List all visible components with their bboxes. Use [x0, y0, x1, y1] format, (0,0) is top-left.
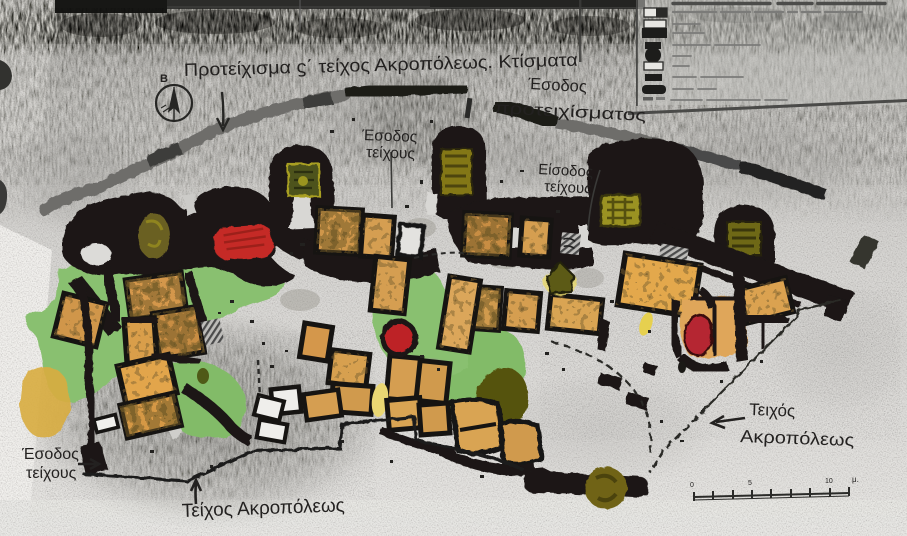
svg-text:τείχους: τείχους: [26, 465, 77, 482]
svg-text:10: 10: [825, 478, 833, 485]
svg-text:5: 5: [748, 480, 752, 487]
svg-text:μ.: μ.: [852, 475, 859, 484]
svg-text:0: 0: [690, 482, 694, 489]
svg-text:τείχους: τείχους: [366, 144, 415, 163]
svg-text:Έσοδος: Έσοδος: [527, 75, 588, 96]
svg-text:Τειχός: Τειχός: [749, 400, 796, 421]
svg-text:Έσοδος: Έσοδος: [21, 446, 79, 463]
svg-text:Ακροπόλεως: Ακροπόλεως: [740, 426, 855, 450]
svg-text:τείχους: τείχους: [544, 178, 592, 197]
svg-text:Β: Β: [160, 73, 168, 85]
svg-text:Έσοδος: Έσοδος: [361, 127, 418, 146]
